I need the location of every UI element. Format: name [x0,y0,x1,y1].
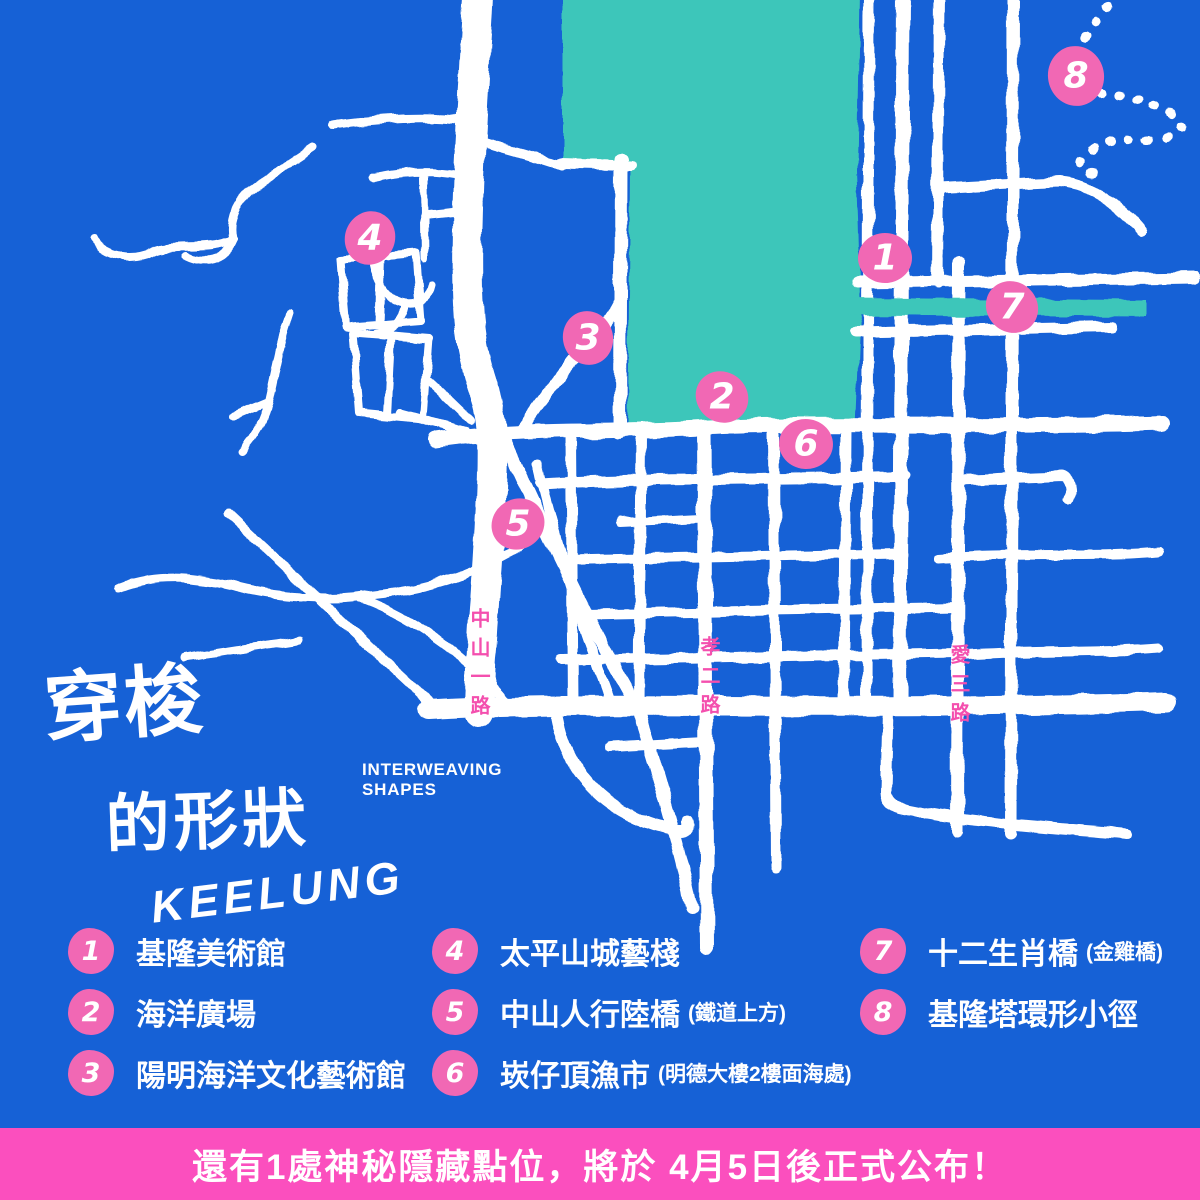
legend-column-3: 7十二生肖橋(金雞橋)8基隆塔環形小徑 [860,928,1163,1050]
legend-number: 8 [874,997,893,1028]
legend-label: 太平山城藝棧 [500,929,680,973]
marker-number: 6 [793,424,818,465]
title-keelung: KEELUNG [148,851,407,934]
legend-number-badge: 2 [68,989,114,1035]
marker-number: 4 [356,218,382,259]
street-label-xiao-2nd-rd: 孝二路 [694,636,723,723]
marker-number: 3 [575,318,600,359]
poster-subtitle: INTERWEAVING SHAPES [362,760,502,800]
legend-number: 7 [874,936,893,967]
legend-label: 海洋廣場 [136,990,256,1034]
legend-note: (鐵道上方) [688,997,786,1027]
legend-item-8[interactable]: 8基隆塔環形小徑 [860,989,1163,1035]
legend-label: 崁仔頂漁市 [500,1051,650,1095]
legend-number-badge: 7 [860,928,906,974]
marker-number: 5 [505,504,530,545]
legend-label: 基隆塔環形小徑 [928,990,1138,1034]
legend-note: (明德大樓2樓面海處) [658,1058,852,1088]
legend-item-2[interactable]: 2海洋廣場 [68,989,406,1035]
legend-number: 2 [82,997,101,1028]
legend-label: 中山人行陸橋 [500,990,680,1034]
legend-number-badge: 8 [860,989,906,1035]
legend-number: 4 [446,936,465,967]
announcement-banner: 還有1處神秘隱藏點位，將於 4月5日後正式公布！ [0,1128,1200,1200]
subtitle-line2: SHAPES [362,780,502,800]
legend-item-5[interactable]: 5中山人行陸橋(鐵道上方) [432,989,852,1035]
legend-number: 6 [446,1058,465,1089]
legend-note: (金雞橋) [1086,936,1163,966]
legend-column-2: 4太平山城藝棧5中山人行陸橋(鐵道上方)6崁仔頂漁市(明德大樓2樓面海處) [432,928,852,1111]
subtitle-line1: INTERWEAVING [362,760,502,780]
legend-column-1: 1基隆美術館2海洋廣場3陽明海洋文化藝術館 [68,928,406,1111]
legend-label: 十二生肖橋 [928,929,1078,973]
legend-item-4[interactable]: 4太平山城藝棧 [432,928,852,974]
legend-number-badge: 5 [432,989,478,1035]
marker-number: 7 [999,287,1024,328]
legend-number-badge: 1 [68,928,114,974]
legend-item-6[interactable]: 6崁仔頂漁市(明德大樓2樓面海處) [432,1050,852,1096]
legend-item-3[interactable]: 3陽明海洋文化藝術館 [68,1050,406,1096]
legend-number-badge: 4 [432,928,478,974]
legend-number: 5 [446,997,465,1028]
map-marker-1[interactable]: 1 [858,233,912,283]
legend-item-7[interactable]: 7十二生肖橋(金雞橋) [860,928,1163,974]
title-line1: 穿梭 [40,623,410,760]
legend-label: 基隆美術館 [136,929,286,973]
street-label-ai-3rd-rd: 愛三路 [944,644,973,731]
title-line2: 的形狀 [104,764,406,866]
harbor-water [563,0,861,430]
street-label-zhongshan-1st-rd: 中山一路 [464,608,493,724]
legend-number: 1 [82,936,101,967]
legend-number-badge: 3 [68,1050,114,1096]
map-marker-8[interactable]: 8 [1043,41,1109,111]
legend-number: 3 [82,1058,101,1089]
marker-number: 2 [709,377,734,418]
announcement-text: 還有1處神秘隱藏點位，將於 4月5日後正式公布！ [192,1139,1008,1190]
legend-number-badge: 6 [432,1050,478,1096]
legend-label: 陽明海洋文化藝術館 [136,1051,406,1095]
marker-number: 1 [872,238,897,279]
poster-title: 穿梭 的形狀 KEELUNG [40,648,403,934]
marker-number: 8 [1063,56,1088,97]
legend-item-1[interactable]: 1基隆美術館 [68,928,406,974]
